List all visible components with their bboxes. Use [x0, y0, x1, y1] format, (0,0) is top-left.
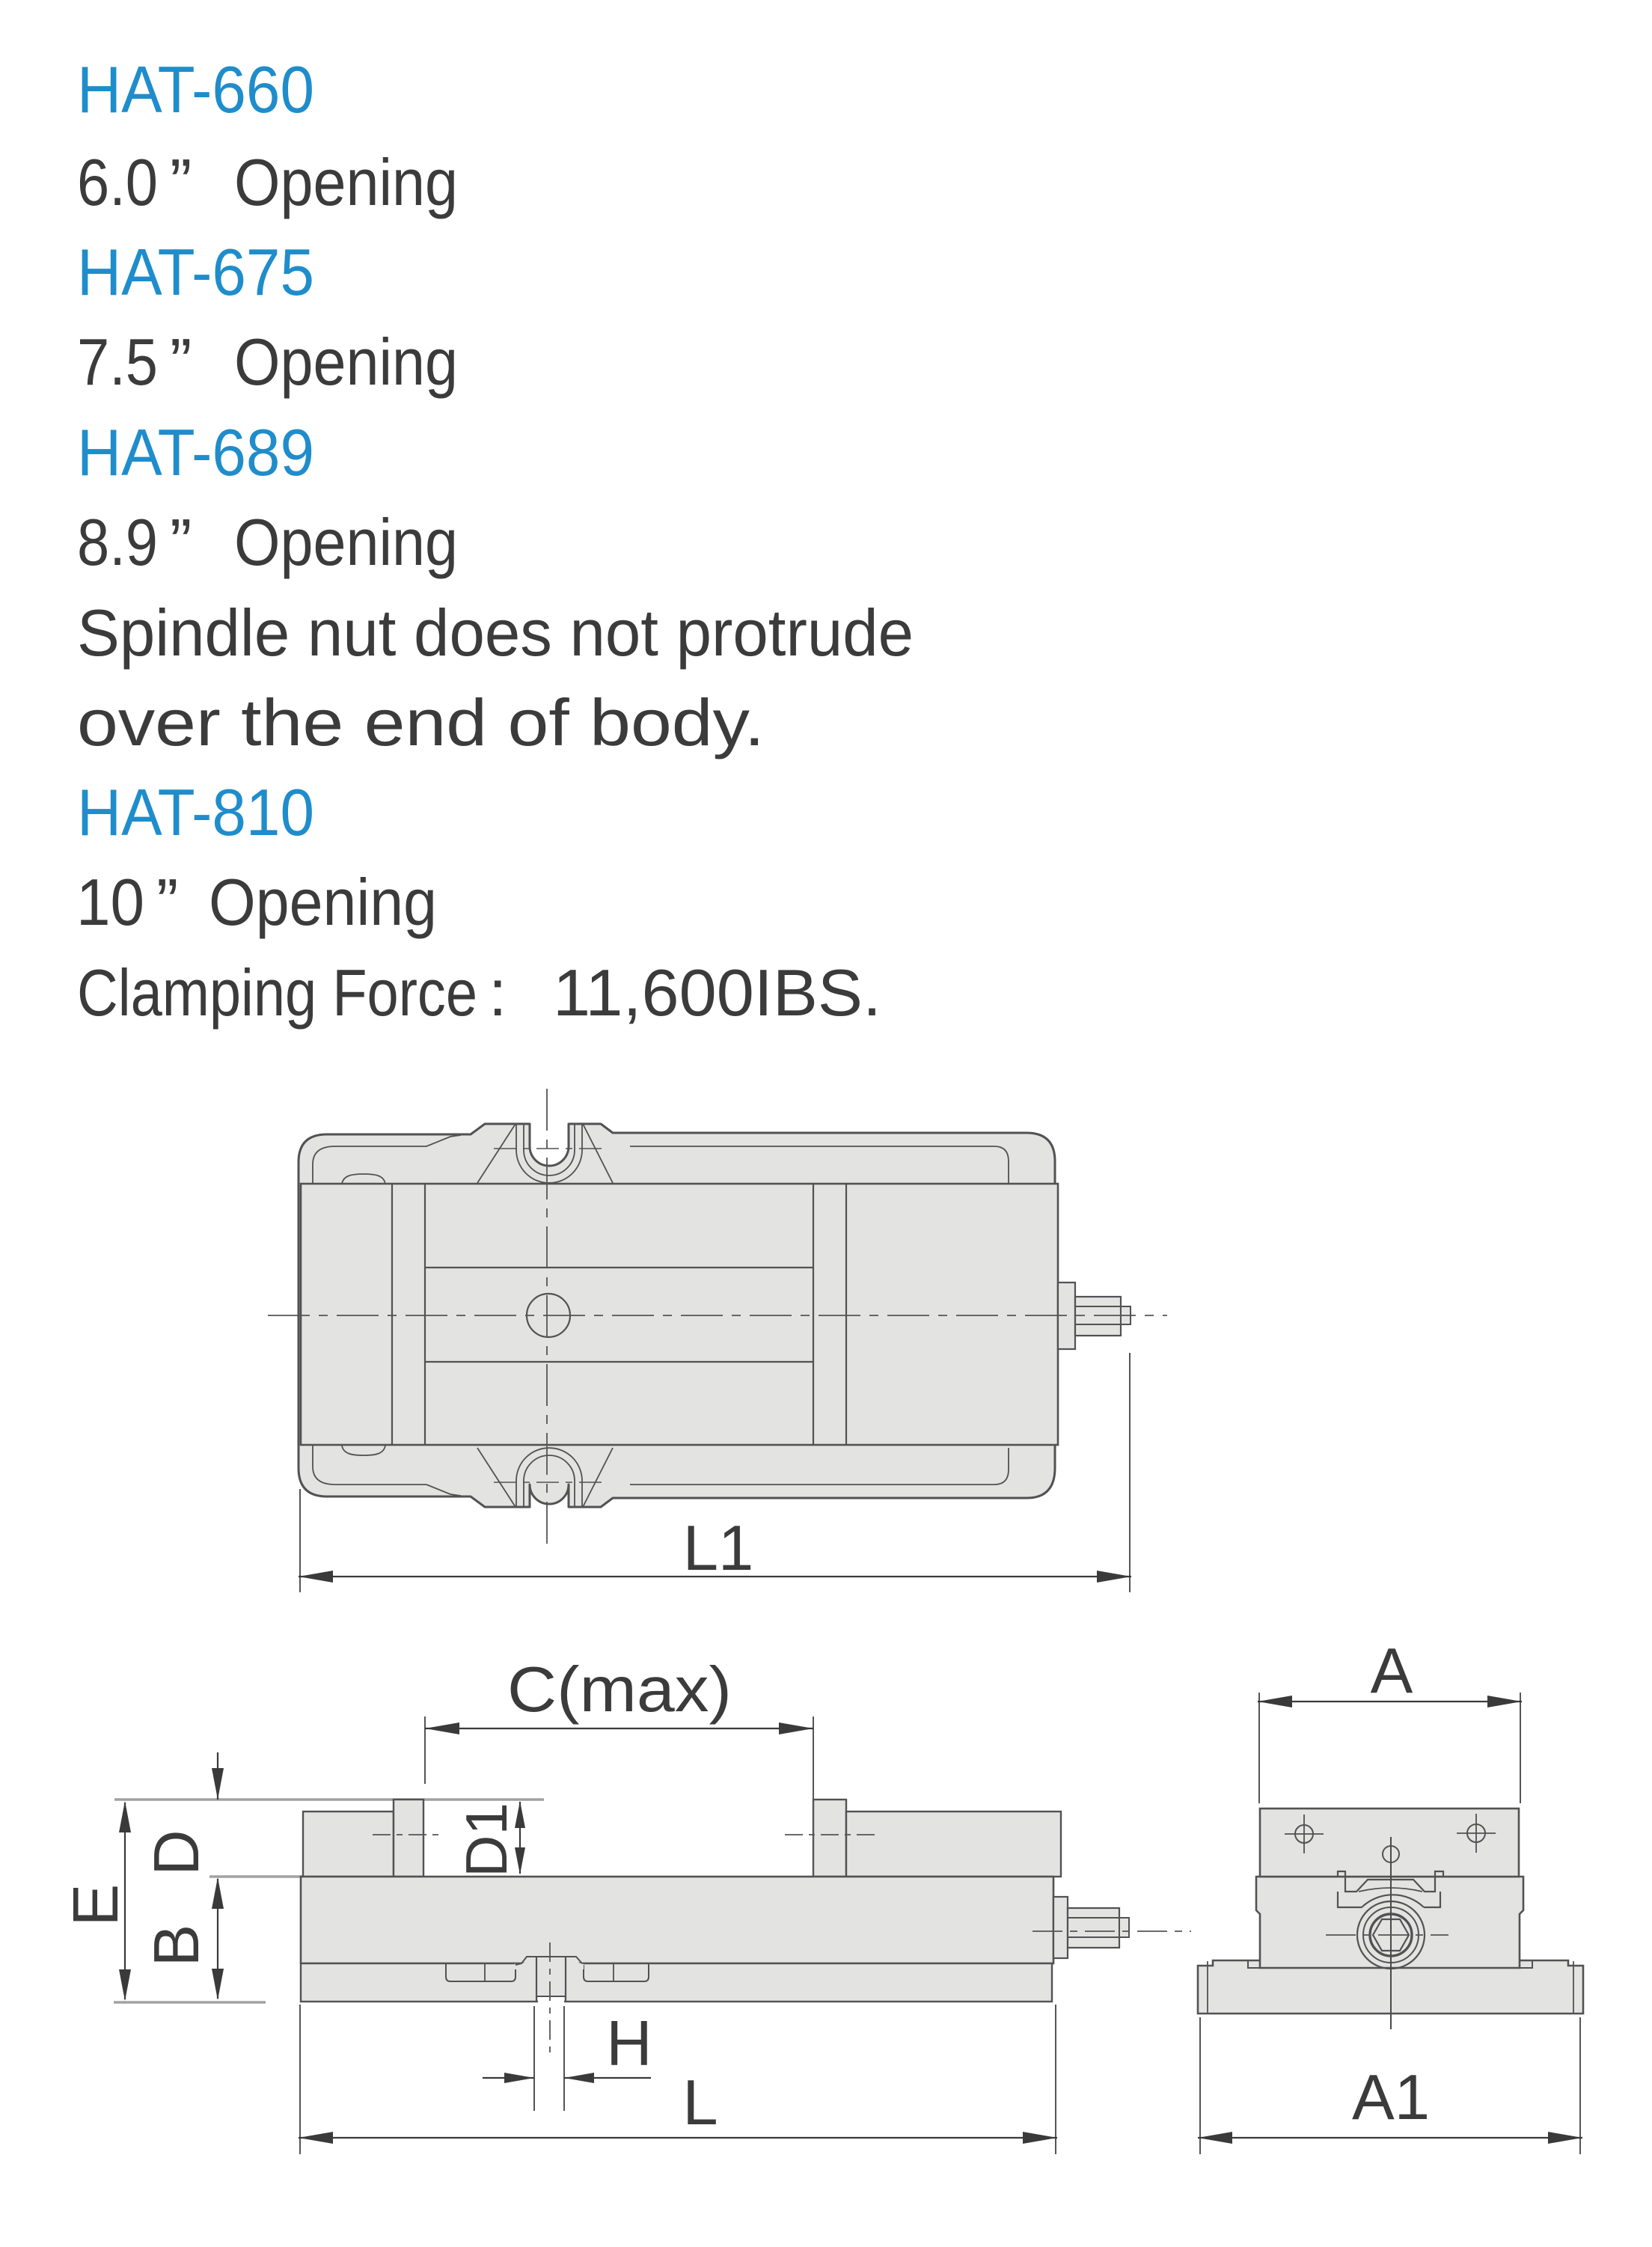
svg-text:D1: D1: [453, 1803, 519, 1877]
svg-text:A1: A1: [1352, 2062, 1430, 2133]
svg-text:8.9”Opening: 8.9”Opening: [77, 505, 458, 579]
svg-text:Clamping Force:11,600IBS.: Clamping Force:11,600IBS.: [77, 956, 881, 1030]
svg-text:HAT-689: HAT-689: [77, 415, 314, 489]
svg-text:L: L: [682, 2067, 718, 2139]
svg-text:6.0”Opening: 6.0”Opening: [77, 145, 458, 219]
svg-text:Spindle nut does not protrude: Spindle nut does not protrude: [77, 596, 914, 670]
svg-text:over the end of body.: over the end of body.: [77, 685, 765, 759]
svg-text:7.5”Opening: 7.5”Opening: [77, 325, 458, 399]
svg-text:D: D: [141, 1829, 212, 1875]
svg-text:C(max): C(max): [507, 1654, 732, 1725]
svg-text:HAT-675: HAT-675: [77, 235, 314, 309]
svg-text:H: H: [606, 2008, 652, 2079]
svg-text:L1: L1: [683, 1513, 754, 1584]
svg-text:A: A: [1371, 1636, 1413, 1707]
svg-text:E: E: [61, 1884, 132, 1927]
svg-text:HAT-810: HAT-810: [77, 775, 314, 849]
svg-text:B: B: [141, 1925, 212, 1967]
svg-text:10”Opening: 10”Opening: [76, 865, 437, 939]
svg-text:HAT-660: HAT-660: [77, 52, 314, 126]
